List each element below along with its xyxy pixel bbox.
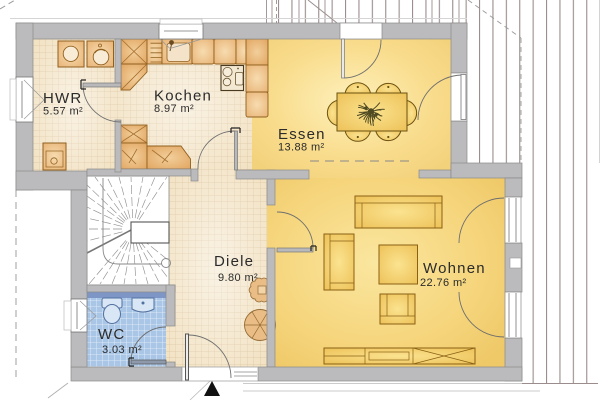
svg-text:9.80 m²: 9.80 m² xyxy=(218,272,258,284)
svg-text:HWR: HWR xyxy=(43,90,82,107)
svg-text:WC: WC xyxy=(98,326,125,343)
svg-text:13.88 m²: 13.88 m² xyxy=(278,142,325,154)
svg-text:3.03 m²: 3.03 m² xyxy=(102,344,142,356)
svg-text:Essen: Essen xyxy=(278,126,326,143)
svg-text:Kochen: Kochen xyxy=(154,88,212,105)
svg-text:8.97 m²: 8.97 m² xyxy=(154,103,194,115)
svg-text:22.76 m²: 22.76 m² xyxy=(420,277,467,289)
svg-text:5.57 m²: 5.57 m² xyxy=(43,106,83,118)
svg-text:Diele: Diele xyxy=(214,253,254,270)
svg-text:Wohnen: Wohnen xyxy=(423,260,486,277)
